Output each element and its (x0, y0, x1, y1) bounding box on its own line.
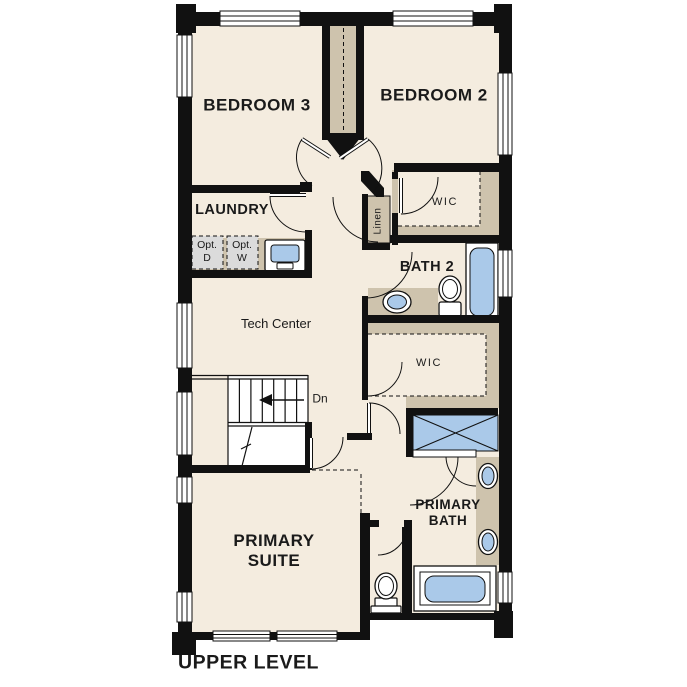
vestibule-floor (366, 396, 406, 408)
room-label-wic-lower: WIC (416, 357, 442, 369)
bath2-sink (383, 291, 411, 313)
room-label-bedroom2: BEDROOM 2 (380, 87, 487, 106)
primary-vanity-sink-2 (479, 530, 498, 555)
bath2-toilet (439, 276, 461, 316)
primary-vanity-sink-1 (479, 464, 498, 489)
room-label-bath2: BATH 2 (400, 260, 454, 276)
optional-washer-label: Opt.W (232, 239, 252, 265)
room-label-bedroom3: BEDROOM 3 (203, 97, 310, 116)
room-label-laundry: LAUNDRY (195, 203, 269, 219)
room-label-primary-suite: PRIMARYSUITE (233, 531, 314, 571)
floor-plan: BEDROOM 3 BEDROOM 2 LAUNDRY Opt.D Opt.W … (0, 0, 687, 687)
tech-center-label: Tech Center (241, 317, 311, 331)
linen-label: Linen (373, 208, 384, 235)
primary-bathtub (414, 566, 496, 611)
room-label-wic-upper: WIC (432, 196, 458, 208)
plan-title: UPPER LEVEL (178, 652, 319, 675)
optional-dryer-label: Opt.D (197, 239, 217, 265)
bath2-bathtub (466, 243, 498, 320)
shower (413, 415, 498, 457)
laundry-sink (265, 240, 305, 271)
floor-plan-drawing (0, 0, 687, 687)
room-label-primary-bath: PRIMARYBATH (415, 497, 480, 529)
shower-glass (413, 450, 476, 457)
stairs-down-label: Dn (312, 392, 327, 405)
